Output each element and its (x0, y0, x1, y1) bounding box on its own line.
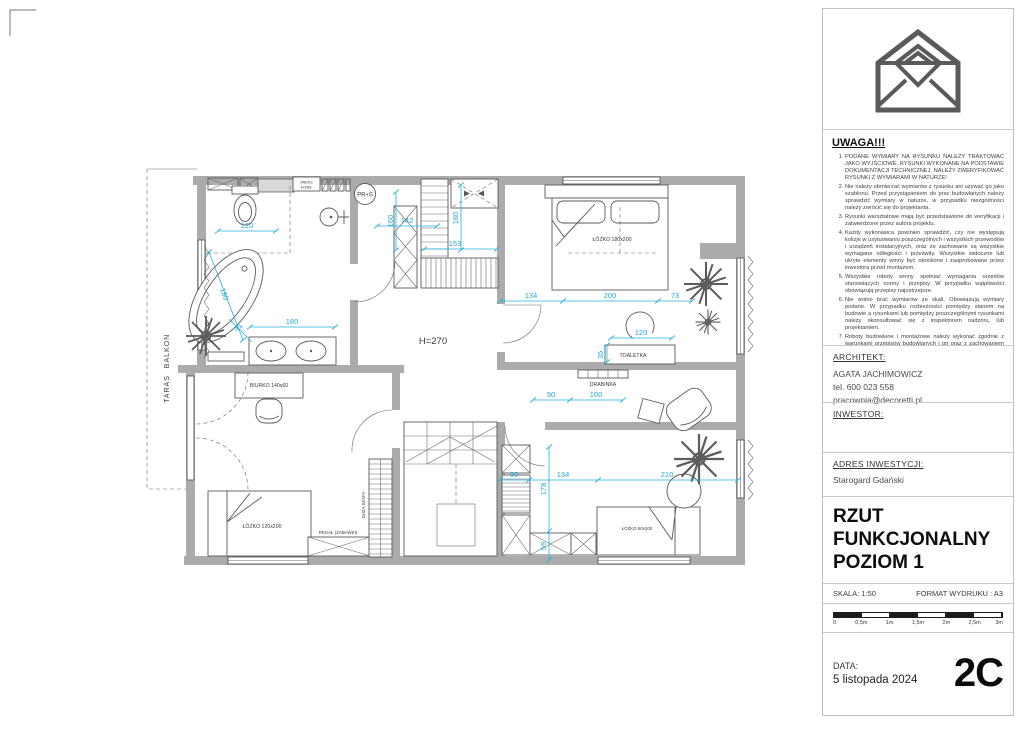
scale-tick-label: 1,5m (912, 620, 924, 626)
scale-tick-label: 0,5m (855, 620, 867, 626)
toy-shelf (308, 537, 370, 556)
note-item: Nie wolno brać wymiarów ze skali. Obowią… (845, 297, 1004, 333)
date-label: DATA: (833, 661, 917, 671)
dim-120-toaletka: 120 (635, 328, 648, 337)
drawing-sheet: 120 142 160 160 153 134 200 73 180 41 18… (0, 0, 1024, 724)
dim-142: 142 (401, 216, 414, 225)
dim-35: 35 (596, 351, 605, 359)
bed-90x200 (597, 507, 700, 555)
scale-format-row: SKALA: 1:50 FORMAT WYDRUKU : A3 (823, 583, 1013, 603)
address-heading: ADRES INWESTYCJI: (833, 459, 1003, 469)
toy-shelf-label: REGAŁ (ZABAWKI) (319, 530, 358, 535)
bed-180-label: ŁÓŻKO 180x200 (593, 236, 632, 243)
dim-90: 90 (510, 470, 518, 479)
bed-90-label: ŁÓŻKO 90x200 (622, 526, 653, 531)
closet-wardrobes (394, 179, 498, 288)
architect-heading: ARCHITEKT: (833, 352, 1003, 362)
ottoman (638, 398, 664, 423)
dim-50: 50 (547, 390, 555, 399)
dim-210: 210 (661, 470, 674, 479)
balcony-bench (208, 352, 244, 361)
dim-100: 100 (590, 390, 603, 399)
ladder-label: DRABINKA (590, 382, 617, 388)
revision-code: 2C (954, 651, 1003, 696)
terrace-label: TARAS (164, 375, 171, 403)
bed-120-label: ŁÓŻKO 120x200 (243, 523, 282, 530)
logo (823, 9, 1013, 129)
balcony-label: BALKON (164, 334, 171, 368)
architect-phone: tel. 600 023 558 (833, 381, 1003, 394)
ceiling-height-label: H=270 (419, 336, 447, 347)
toilet (232, 186, 258, 225)
date-section: DATA: 5 listopada 2024 2C (823, 632, 1013, 715)
aneks-label-line2: KOSM. (301, 186, 313, 190)
plant-bush (684, 262, 728, 306)
scale-bar-labels: 0 0,5m 1m 1,5m 2m 2,5m 3m (833, 618, 1003, 630)
desk (235, 373, 303, 423)
house-logo-icon (866, 23, 970, 115)
drawing-title-box: RZUT FUNKCJONALNY POZIOM 1 (823, 496, 1013, 583)
side-table (667, 474, 701, 508)
dim-134-b: 134 (557, 470, 570, 479)
note-item: Roboty budowlane i montażowe należy wyko… (845, 334, 1004, 345)
note-item: PODANE WYMIARY NA RYSUNKU NALEŻY TRAKTOW… (845, 154, 1004, 183)
stairwell (404, 422, 497, 556)
drawing-title: RZUT FUNKCJONALNY POZIOM 1 (833, 505, 1003, 575)
date-value: 5 listopada 2024 (833, 674, 917, 686)
vanity-double-sink (249, 337, 336, 365)
aneks-label-line1: ANEKS (300, 181, 313, 185)
dim-73: 73 (671, 291, 679, 300)
wardrobe-label: DUŻA SZAFA (361, 492, 366, 519)
scale-tick-label: 1m (886, 620, 894, 626)
note-item: Każdy wykonawca powinien sprawdzić, czy … (845, 230, 1004, 273)
scale-tick-label: 2m (943, 620, 951, 626)
dim-200: 200 (604, 291, 617, 300)
notes-section: UWAGA!!! PODANE WYMIARY NA RYSUNKU NALEŻ… (823, 129, 1013, 345)
dressing-table-label: TOALETKA (619, 353, 647, 359)
dim-120-wc: 120 (241, 221, 254, 230)
dim-59: 59 (539, 542, 548, 550)
notes-list: PODANE WYMIARY NA RYSUNKU NALEŻY TRAKTOW… (832, 154, 1004, 345)
plant-flower (696, 310, 721, 335)
dim-178: 178 (539, 483, 548, 496)
address-section: ADRES INWESTYCJI: Starogard Gdański (823, 452, 1013, 496)
plant-starburst (674, 434, 724, 484)
washbasin (320, 208, 349, 226)
notes-heading: UWAGA!!! (832, 137, 1004, 149)
scale-label: SKALA: 1:50 (833, 589, 876, 598)
scale-tick-label: 0 (833, 620, 836, 626)
note-item: Rysunki warsztatowe mają być przedstawio… (845, 214, 1004, 228)
washer-dryer-label: PR+S (357, 193, 373, 199)
floor-plan-drawing: 120 142 160 160 153 134 200 73 180 41 18… (0, 0, 822, 724)
print-format-label: FORMAT WYDRUKU : A3 (916, 589, 1003, 598)
title-block: UWAGA!!! PODANE WYMIARY NA RYSUNKU NALEŻ… (822, 8, 1014, 716)
note-item: Wszystkie roboty winny spełniać wymagani… (845, 274, 1004, 295)
zigzag-insulation (748, 256, 753, 500)
dim-160-b: 160 (451, 212, 460, 225)
architect-name: AGATA JACHIMOWICZ (833, 368, 1003, 381)
investor-section: INWESTOR: (823, 402, 1013, 452)
dim-134-a: 134 (525, 291, 538, 300)
big-wardrobe (369, 459, 392, 557)
scale-tick-label: 2,5m (968, 620, 980, 626)
scale-tick-label: 3m (995, 620, 1003, 626)
investor-heading: INWESTOR: (833, 409, 1003, 419)
desk-label: BIURKO 140x60 (250, 383, 288, 389)
ladder (578, 370, 628, 378)
dim-160-a: 160 (386, 215, 395, 228)
note-item: Nie należy obmierzać wymiarów z rysunku … (845, 184, 1004, 213)
scale-bar-section: 0 0,5m 1m 1,5m 2m 2,5m 3m (823, 603, 1013, 632)
balcony-plant (186, 316, 226, 356)
dim-180-vanity: 180 (286, 317, 299, 326)
dim-153: 153 (449, 239, 462, 248)
architect-section: ARCHITEKT: AGATA JACHIMOWICZ tel. 600 02… (823, 345, 1013, 402)
corner-crop-mark (10, 10, 36, 36)
address-value: Starogard Gdański (833, 474, 1003, 487)
